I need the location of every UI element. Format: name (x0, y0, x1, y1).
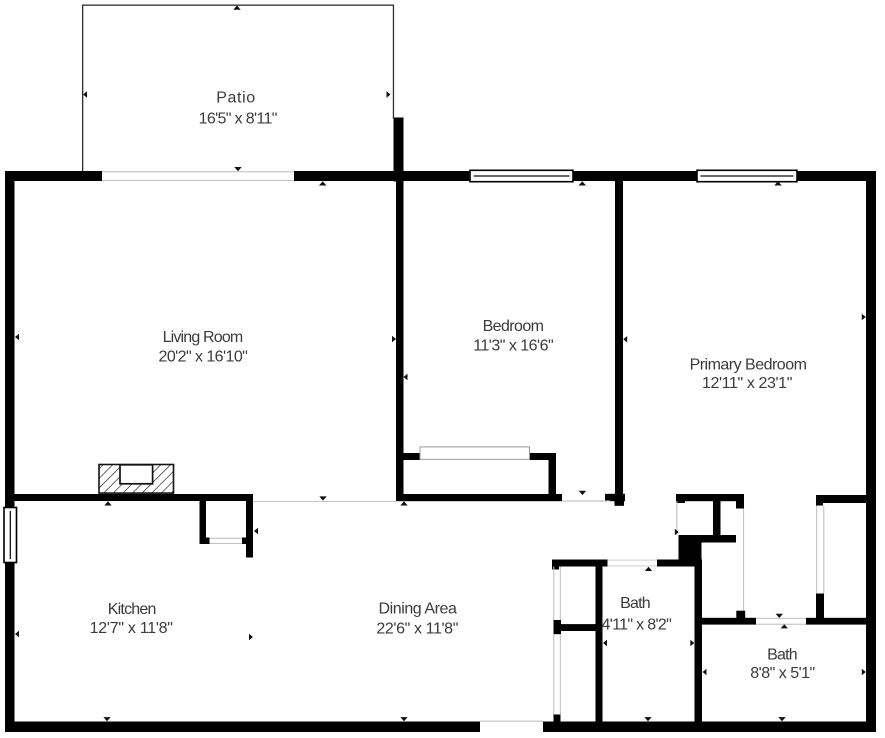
svg-text:Kitchen: Kitchen (108, 601, 156, 618)
svg-text:11'3" x 16'6": 11'3" x 16'6" (473, 337, 553, 354)
svg-text:Patio: Patio (216, 89, 255, 106)
svg-text:Dining Area: Dining Area (379, 600, 457, 617)
svg-text:Bath: Bath (767, 646, 797, 663)
svg-text:Bath: Bath (620, 595, 650, 612)
svg-text:20'2" x 16'10": 20'2" x 16'10" (158, 348, 247, 365)
svg-text:8'8" x 5'1": 8'8" x 5'1" (750, 665, 814, 682)
svg-text:Primary Bedroom: Primary Bedroom (690, 357, 807, 374)
svg-text:4'11" x 8'2": 4'11" x 8'2" (601, 616, 671, 633)
svg-text:Living Room: Living Room (163, 329, 243, 346)
svg-text:12'11" x 23'1": 12'11" x 23'1" (702, 375, 792, 392)
svg-text:12'7" x 11'8": 12'7" x 11'8" (90, 620, 173, 637)
svg-text:Bedroom: Bedroom (483, 318, 544, 335)
svg-text:16'5" x 8'11": 16'5" x 8'11" (199, 111, 277, 128)
svg-text:22'6" x 11'8": 22'6" x 11'8" (376, 621, 458, 638)
